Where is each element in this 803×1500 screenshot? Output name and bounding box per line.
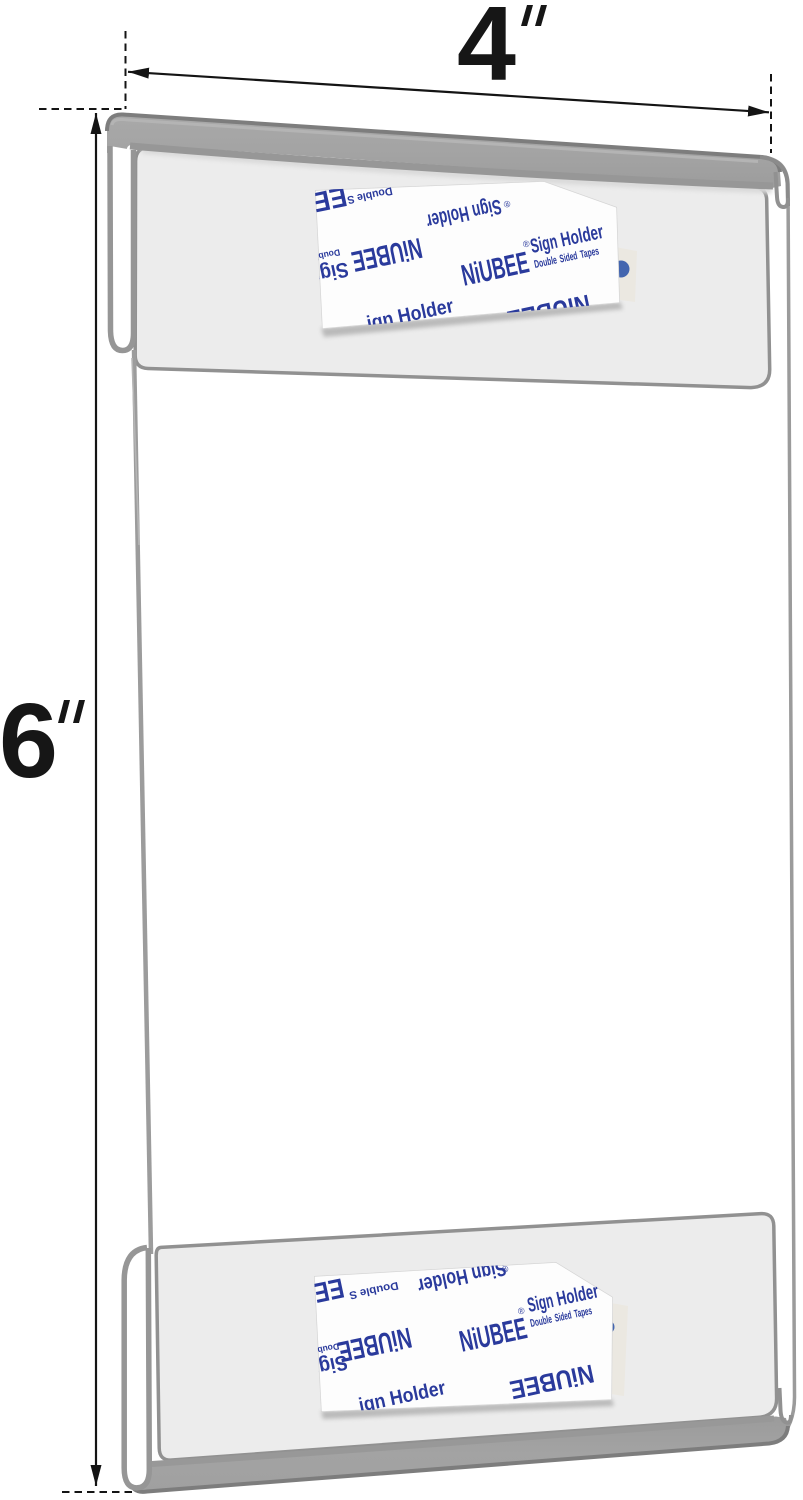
svg-text:6: 6 xyxy=(0,682,58,800)
svg-text:4: 4 xyxy=(457,0,516,103)
svg-text:EE: EE xyxy=(311,1272,347,1309)
